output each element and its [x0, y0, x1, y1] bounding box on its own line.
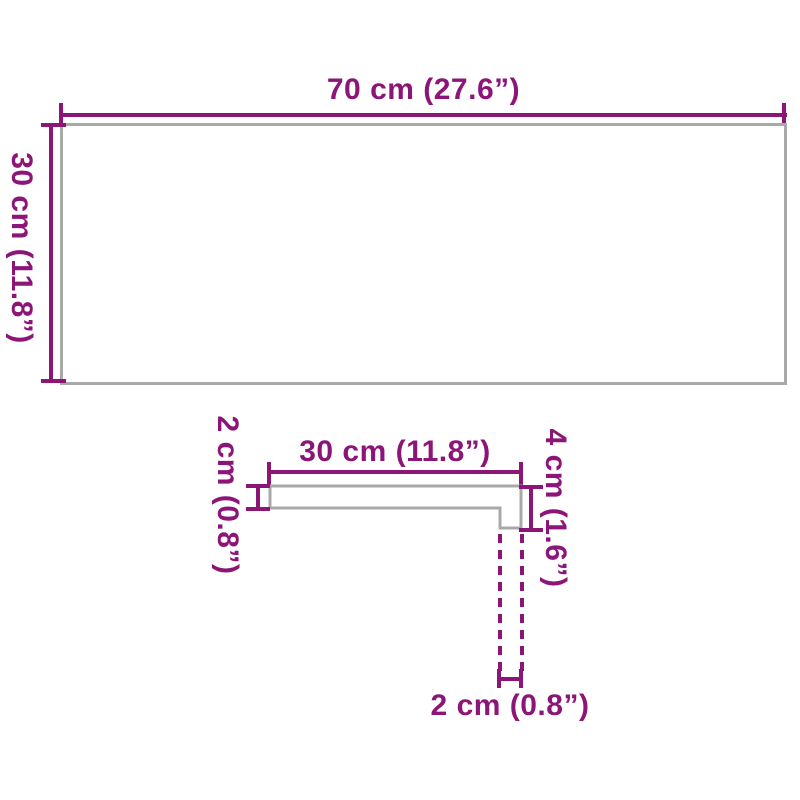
nose-extension-line-right	[520, 534, 524, 672]
nose-width-dimension-tick-right	[519, 669, 523, 688]
thickness-dimension-tick-top	[246, 484, 270, 488]
profile-thickness-label: 2 cm (0.8”)	[213, 415, 243, 575]
dimension-diagram: 70 cm (27.6”) 30 cm (11.8”) 30 cm (11.8”…	[0, 0, 800, 800]
front-height-dimension-line	[529, 485, 533, 532]
profile-front-height-label: 4 cm (1.6”)	[541, 428, 571, 588]
thickness-dimension-tick-bottom	[246, 507, 270, 511]
nose-width-dimension-tick-left	[497, 669, 501, 688]
profile-nose-width-label: 2 cm (0.8”)	[360, 690, 660, 722]
nose-extension-line-left	[498, 534, 502, 672]
profile-outline-svg	[0, 0, 800, 800]
nose-width-dimension-line	[499, 677, 521, 681]
profile-outline	[270, 486, 521, 528]
